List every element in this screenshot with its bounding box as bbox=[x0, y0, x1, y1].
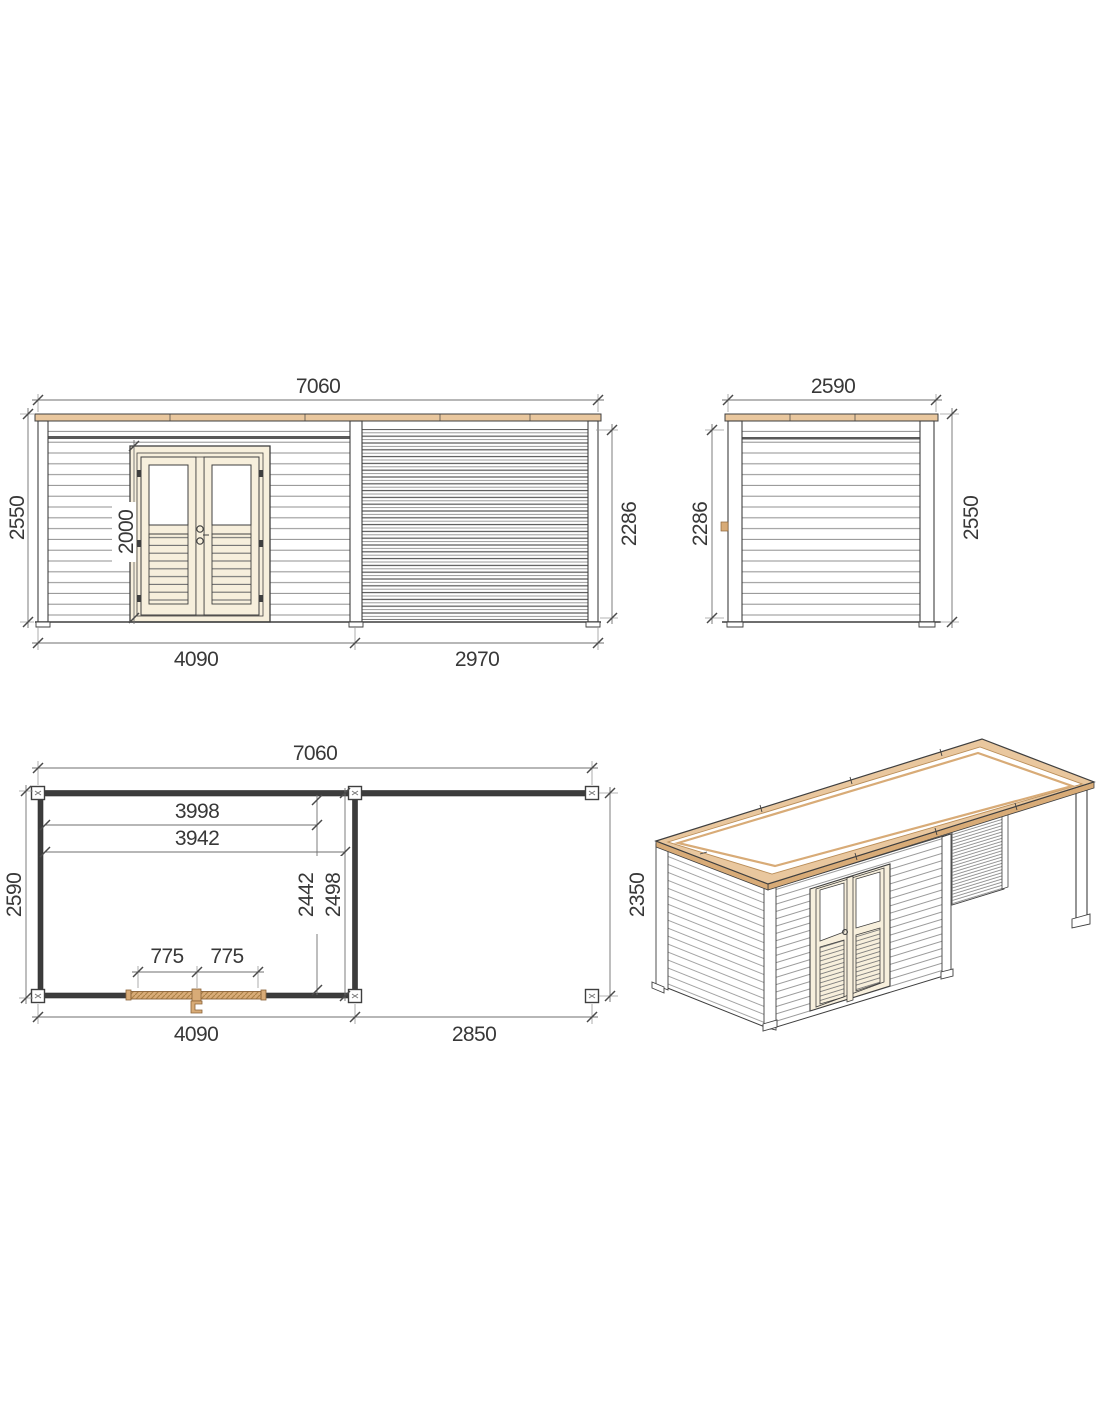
iso-corner-trim-front bbox=[764, 882, 776, 1030]
plan-bottom-wall-left bbox=[43, 993, 131, 998]
dim-front-door-height: 2000 bbox=[115, 510, 138, 554]
dim-plan-canopy-width: 2850 bbox=[452, 1023, 496, 1046]
dim-plan-inner-depth-b: 2498 bbox=[322, 873, 345, 917]
dim-plan-depth: 2590 bbox=[3, 873, 26, 917]
dim-side-width: 2590 bbox=[811, 375, 855, 398]
plan-door-meeting-stile bbox=[192, 989, 201, 1001]
iso-corner-trim-left bbox=[656, 844, 668, 990]
iso-door-right-louvers bbox=[856, 928, 880, 991]
side-building bbox=[721, 414, 941, 627]
front-right-trim bbox=[588, 421, 598, 622]
iso-double-door bbox=[810, 864, 890, 1011]
side-elevation-view: 2590 2286 2550 bbox=[689, 375, 983, 628]
front-middle-trim bbox=[350, 421, 362, 622]
dim-plan-inner-width-b: 3942 bbox=[175, 827, 219, 850]
iso-corner-trim-right bbox=[942, 834, 951, 978]
dim-side-wall-height: 2286 bbox=[689, 502, 712, 546]
dim-plan-inner-depth-a: 2442 bbox=[295, 873, 318, 917]
side-door-handle-mark bbox=[721, 522, 728, 531]
door-right-glass bbox=[212, 465, 251, 525]
side-siding bbox=[742, 428, 920, 620]
dim-plan-room-width: 4090 bbox=[174, 1023, 218, 1046]
plan-left-wall bbox=[38, 796, 43, 993]
front-roof-fascia bbox=[35, 414, 601, 421]
plan-top-beam bbox=[38, 791, 592, 797]
iso-pergola-post-foot bbox=[1072, 914, 1090, 928]
dim-plan-inner-width-a: 3998 bbox=[175, 800, 219, 823]
iso-door-left-louvers bbox=[820, 940, 844, 1004]
dim-plan-total-width: 7060 bbox=[293, 742, 337, 765]
door-right-louvers bbox=[212, 534, 251, 604]
front-louver-wall bbox=[362, 429, 588, 620]
iso-door-mullion bbox=[847, 876, 853, 1002]
plan-door bbox=[126, 989, 266, 1013]
technical-drawing-canvas: 7060 2550 2000 2286 4090 2970 bbox=[0, 0, 1100, 1422]
iso-pergola-post bbox=[1076, 783, 1087, 923]
side-right-post bbox=[920, 421, 934, 622]
front-elevation-view: 7060 2550 2000 2286 4090 2970 bbox=[6, 375, 641, 671]
blueprint-page: 7060 2550 2000 2286 4090 2970 bbox=[0, 0, 1100, 1422]
dim-side-overall-height: 2550 bbox=[960, 496, 983, 540]
door-left-glass bbox=[149, 465, 188, 525]
floor-plan-view: 7060 3998 3942 2590 2442 2498 775 775 40… bbox=[3, 742, 649, 1046]
front-left-trim bbox=[38, 421, 48, 622]
dim-plan-door-leaf-right: 775 bbox=[210, 945, 243, 968]
dim-front-room-width: 4090 bbox=[174, 648, 218, 671]
iso-door-left-glass bbox=[820, 883, 844, 941]
plan-door-handle bbox=[191, 1001, 202, 1013]
front-double-door bbox=[130, 446, 270, 622]
door-left-louvers bbox=[149, 534, 188, 604]
plan-dimensions: 7060 3998 3942 2590 2442 2498 775 775 40… bbox=[3, 742, 649, 1046]
plan-partition-wall bbox=[353, 796, 358, 993]
door-mullion bbox=[196, 457, 204, 615]
iso-screen-end-post bbox=[1002, 810, 1008, 889]
dim-front-overall-height: 2550 bbox=[6, 496, 29, 540]
plan-bottom-wall-right bbox=[261, 993, 353, 998]
side-left-post bbox=[728, 421, 742, 622]
dim-front-wall-height: 2286 bbox=[618, 502, 641, 546]
plan-door-jamb-right bbox=[261, 990, 266, 1000]
iso-door-right-glass bbox=[856, 872, 880, 928]
plan-door-jamb-left bbox=[126, 990, 131, 1000]
isometric-view bbox=[652, 739, 1094, 1031]
dim-front-annex-width: 2970 bbox=[455, 648, 499, 671]
side-roof-fascia bbox=[725, 414, 938, 421]
dim-plan-door-leaf-left: 775 bbox=[150, 945, 183, 968]
front-siding-top-band bbox=[48, 436, 352, 439]
dim-plan-canopy-depth: 2350 bbox=[626, 873, 649, 917]
dim-front-total-width: 7060 bbox=[296, 375, 340, 398]
side-siding-top-band bbox=[742, 437, 920, 440]
